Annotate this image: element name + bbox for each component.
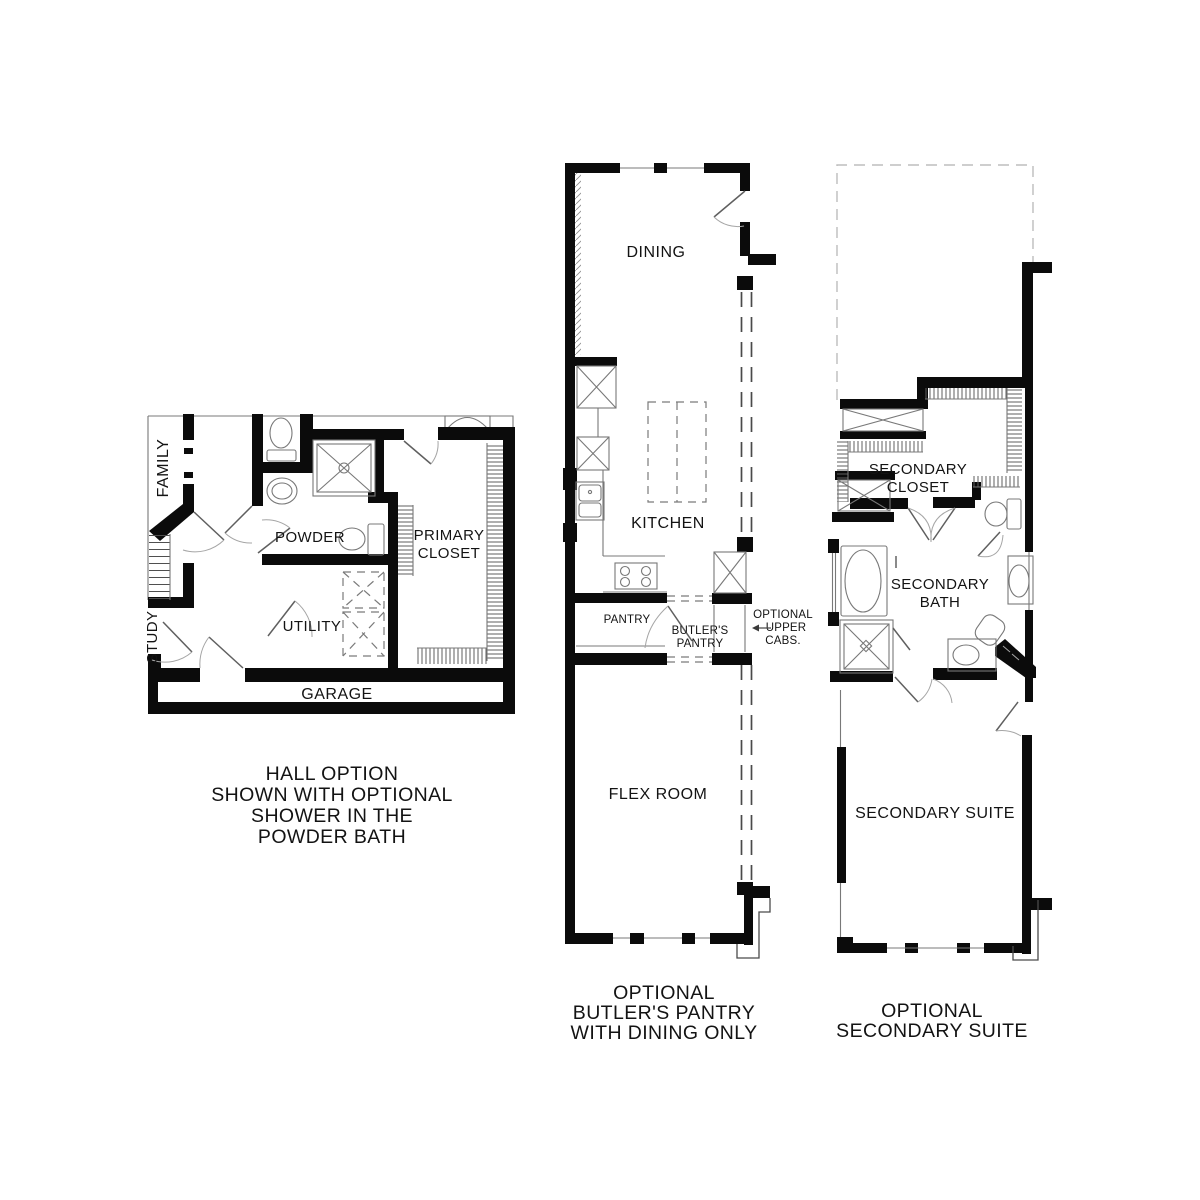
svg-text:SHOWER IN THE: SHOWER IN THE bbox=[251, 805, 413, 827]
caption-hall-option: HALL OPTION SHOWN WITH OPTIONAL SHOWER I… bbox=[211, 763, 453, 848]
room-label-kitchen: KITCHEN bbox=[631, 515, 705, 532]
toilet-fixture bbox=[985, 499, 1021, 529]
cooktop-fixture bbox=[615, 563, 657, 589]
svg-text:WITH DINING ONLY: WITH DINING ONLY bbox=[571, 1022, 758, 1044]
room-label-secondary-suite: SECONDARY SUITE bbox=[855, 805, 1015, 822]
shower-fixture bbox=[313, 440, 375, 496]
plan-secondary-suite: SECONDARY CLOSET SECONDARY BATH SECONDAR… bbox=[828, 165, 1052, 1042]
room-label-family: FAMILY bbox=[155, 439, 172, 498]
stairs bbox=[149, 534, 170, 600]
cabinet-box bbox=[577, 408, 609, 470]
svg-text:OPTIONAL: OPTIONAL bbox=[613, 982, 715, 1004]
room-label-secondary-closet-2: CLOSET bbox=[887, 479, 949, 496]
toilet-fixture bbox=[267, 418, 296, 461]
sink-fixture bbox=[267, 478, 297, 504]
vanity-sink-fixture bbox=[948, 612, 1008, 671]
svg-text:BUTLER'S PANTRY: BUTLER'S PANTRY bbox=[573, 1002, 755, 1024]
plan-hall-option: FAMILY POWDER PRIMARY CLOSET STUDY UTILI… bbox=[144, 414, 515, 848]
window-lines bbox=[613, 168, 710, 938]
right-wall-sink-fixture bbox=[1008, 552, 1033, 610]
optional-outline-dashed bbox=[837, 165, 1033, 400]
annotation-upper-cabs: OPTIONAL UPPER CABS. bbox=[752, 609, 813, 647]
walls bbox=[148, 414, 515, 714]
caption-butlers-pantry: OPTIONAL BUTLER'S PANTRY WITH DINING ONL… bbox=[571, 982, 758, 1044]
kitchen-sink-fixture bbox=[576, 482, 604, 520]
floor-plan-sheet: FAMILY POWDER PRIMARY CLOSET STUDY UTILI… bbox=[0, 0, 1200, 1200]
powder-toilet-fixture bbox=[339, 524, 384, 555]
room-label-dining: DINING bbox=[627, 244, 686, 261]
bathtub-fixture bbox=[833, 546, 888, 616]
shower-fixture bbox=[840, 620, 893, 673]
door-swings bbox=[893, 508, 1021, 736]
upper-cabinet-box bbox=[714, 552, 746, 593]
svg-text:OPTIONAL: OPTIONAL bbox=[753, 609, 813, 621]
room-label-secondary-bath-2: BATH bbox=[920, 594, 961, 611]
closet-rod-box bbox=[843, 409, 923, 431]
svg-text:UPPER: UPPER bbox=[766, 622, 807, 634]
svg-text:POWDER BATH: POWDER BATH bbox=[258, 826, 406, 848]
room-label-primary-closet-1: PRIMARY bbox=[414, 527, 485, 544]
kitchen-island bbox=[648, 402, 706, 502]
caption-secondary-suite: OPTIONAL SECONDARY SUITE bbox=[836, 1000, 1028, 1042]
refrigerator-box bbox=[577, 366, 616, 408]
svg-text:HALL OPTION: HALL OPTION bbox=[266, 763, 399, 785]
svg-text:SHOWN WITH OPTIONAL: SHOWN WITH OPTIONAL bbox=[211, 784, 453, 806]
room-label-flex-room: FLEX ROOM bbox=[609, 786, 708, 803]
svg-text:SECONDARY SUITE: SECONDARY SUITE bbox=[836, 1020, 1028, 1042]
svg-text:OPTIONAL: OPTIONAL bbox=[881, 1000, 983, 1022]
fireplace-chase bbox=[737, 898, 770, 958]
room-label-garage: GARAGE bbox=[301, 686, 372, 703]
plan-butlers-pantry: DINING KITCHEN PANTRY BUTLER'S PANTRY FL… bbox=[563, 163, 813, 1044]
floor-plans-canvas: FAMILY POWDER PRIMARY CLOSET STUDY UTILI… bbox=[0, 0, 1200, 1200]
room-label-secondary-bath-1: SECONDARY bbox=[891, 576, 989, 593]
room-label-pantry: PANTRY bbox=[604, 614, 651, 626]
wall-hatch bbox=[575, 173, 581, 355]
room-label-powder: POWDER bbox=[275, 529, 345, 546]
room-label-study: STUDY bbox=[144, 611, 161, 664]
svg-text:CABS.: CABS. bbox=[765, 635, 801, 647]
room-label-utility: UTILITY bbox=[283, 618, 342, 635]
washer-dryer-boxes bbox=[343, 572, 384, 656]
room-label-butlers-pantry-2: PANTRY bbox=[677, 638, 724, 650]
room-label-primary-closet-2: CLOSET bbox=[418, 545, 480, 562]
room-label-butlers-pantry-1: BUTLER'S bbox=[672, 625, 729, 637]
room-label-secondary-closet-1: SECONDARY bbox=[869, 461, 967, 478]
